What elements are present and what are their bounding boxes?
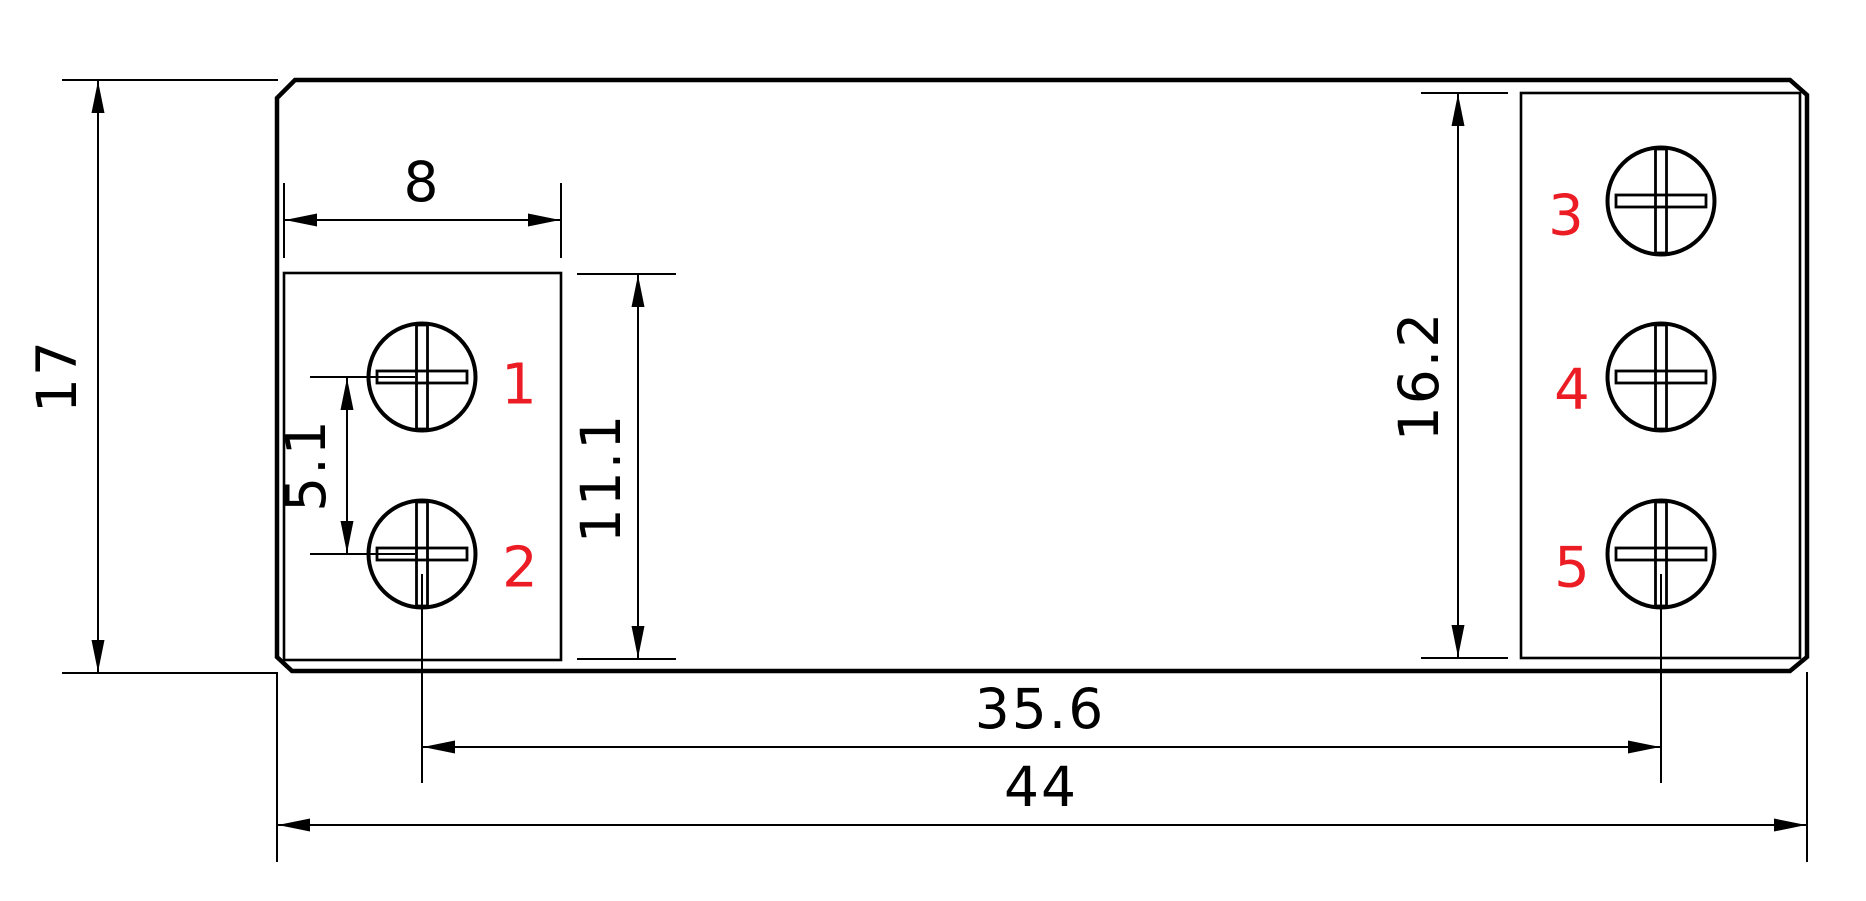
terminal-label-3: 3 (1548, 184, 1584, 249)
dimension-left-block-height: 11.1 (569, 274, 676, 659)
dimension-right-block-height: 16.2 (1387, 93, 1508, 658)
dimension-value-44: 44 (1004, 755, 1078, 819)
arrowhead-down (1452, 625, 1465, 657)
dimension-value-35-6: 35.6 (975, 677, 1105, 741)
arrowhead-down (92, 640, 105, 672)
arrowhead-up (92, 81, 105, 113)
technical-drawing-canvas: 17 8 5.1 11.1 16.2 (0, 0, 1866, 901)
arrowhead-up (632, 275, 645, 307)
dimension-drawing: 17 8 5.1 11.1 16.2 (0, 0, 1866, 901)
dimension-value-5-1: 5.1 (274, 418, 338, 511)
arrowhead-up (341, 378, 354, 410)
arrowhead-up (1452, 94, 1465, 126)
terminal-label-1: 1 (501, 353, 537, 418)
screw-3-head (1608, 148, 1715, 255)
arrowhead-right (1774, 819, 1806, 832)
dimension-value-17: 17 (25, 339, 89, 413)
dimension-overall-height: 17 (25, 80, 278, 673)
arrowhead-down (632, 626, 645, 658)
terminal-label-5: 5 (1554, 536, 1590, 601)
screw-4-head (1608, 324, 1715, 431)
dimension-value-11-1: 11.1 (569, 413, 633, 543)
dimension-value-8: 8 (404, 150, 441, 214)
arrowhead-right (528, 214, 560, 227)
arrowhead-down (341, 521, 354, 553)
terminal-label-4: 4 (1554, 358, 1590, 423)
dimension-left-block-width: 8 (284, 150, 561, 258)
dimension-screw-span: 35.6 (423, 677, 1660, 754)
terminal-screw-3 (1608, 148, 1715, 255)
terminal-screw-4 (1608, 324, 1715, 431)
arrowhead-right (1628, 741, 1660, 754)
arrowhead-left (423, 741, 455, 754)
dimension-value-16-2: 16.2 (1387, 311, 1451, 441)
arrowhead-left (278, 819, 310, 832)
arrowhead-left (285, 214, 317, 227)
terminal-label-2: 2 (502, 536, 538, 601)
